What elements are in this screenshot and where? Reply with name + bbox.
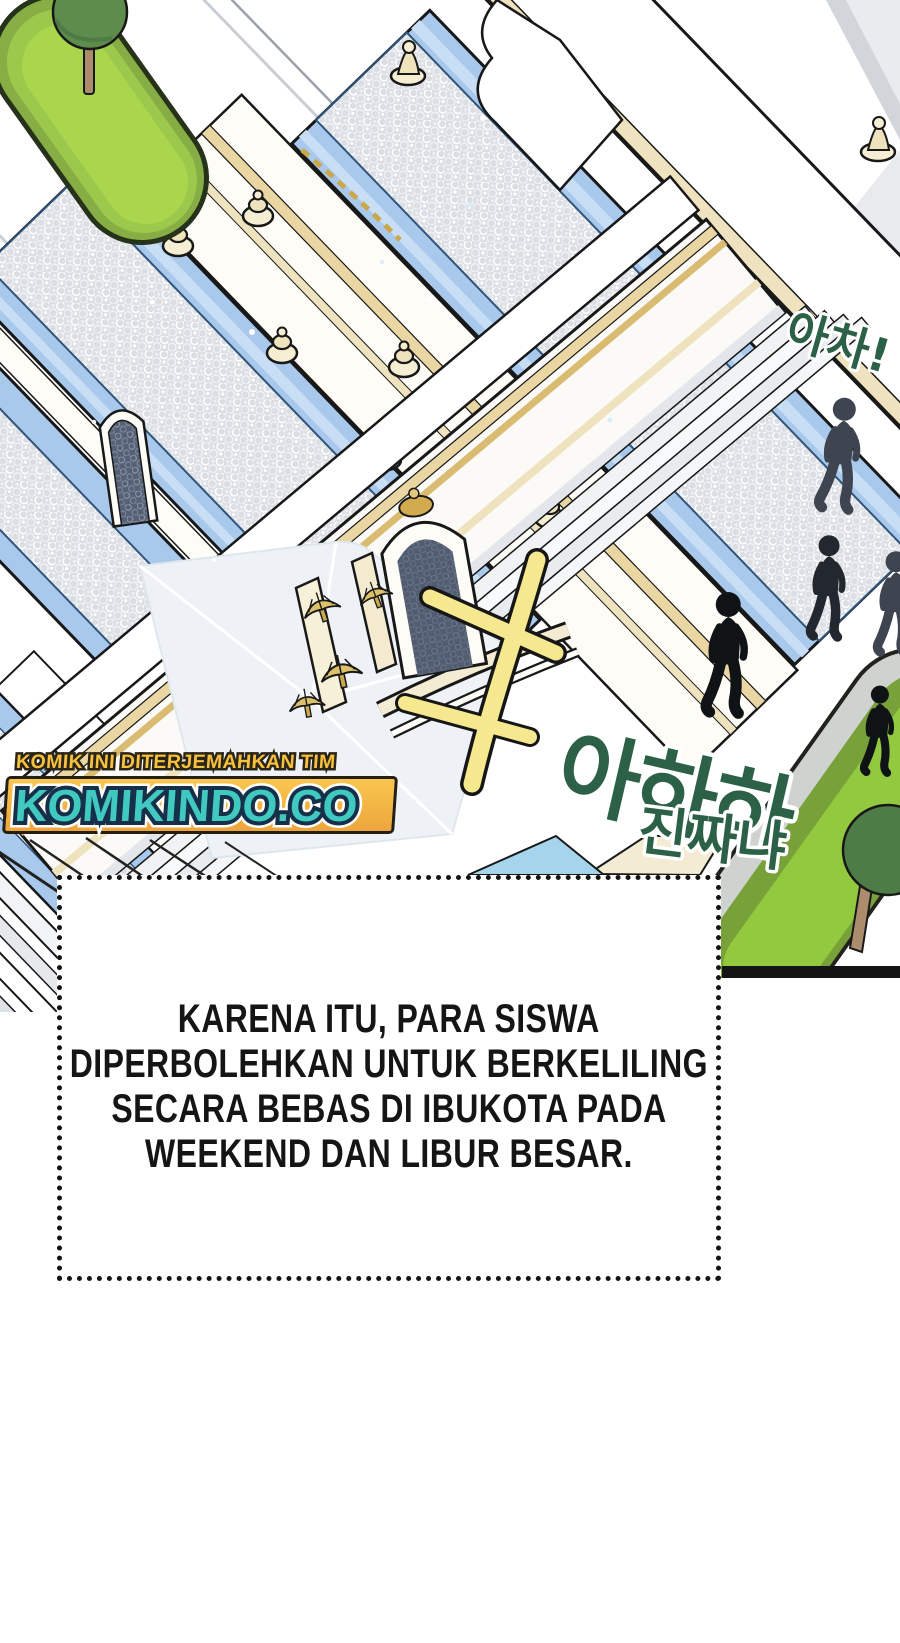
- translator-watermark: KOMIK INI DITERJEMAHKAN TIM KOMIK INI DI…: [0, 750, 410, 842]
- narration-line: WEEKEND DAN LIBUR BESAR.: [145, 1132, 633, 1177]
- watermark-credit-text: KOMIK INI DITERJEMAHKAN TIM: [15, 750, 336, 774]
- narration-line: DIPERBOLEHKAN UNTUK BERKELILING: [70, 1042, 708, 1087]
- watermark-credit: KOMIK INI DITERJEMAHKAN TIM KOMIK INI DI…: [15, 750, 17, 776]
- narration-line: SECARA BEBAS DI IBUKOTA PADA: [111, 1087, 666, 1132]
- palace-illustration: 아차! 아하하 진짜냐: [0, 0, 900, 1012]
- watermark-site-band: KOMIKINDO.CO KOMIKINDO.CO KOMIKINDO.CO: [2, 776, 398, 834]
- narration-box: KARENA ITU, PARA SISWA DIPERBOLEHKAN UNT…: [57, 875, 721, 1281]
- watermark-site-text: KOMIKINDO.CO: [13, 781, 359, 831]
- narration-line: KARENA ITU, PARA SISWA: [178, 997, 600, 1042]
- lawn-top-left: [58, 60, 146, 182]
- panel-bottom-edge: [722, 966, 900, 978]
- panel-mask: [700, 978, 900, 1012]
- comic-page: 아차! 아하하 진짜냐 KOMIK INI DITERJEMAHKAN TIM …: [0, 0, 900, 1643]
